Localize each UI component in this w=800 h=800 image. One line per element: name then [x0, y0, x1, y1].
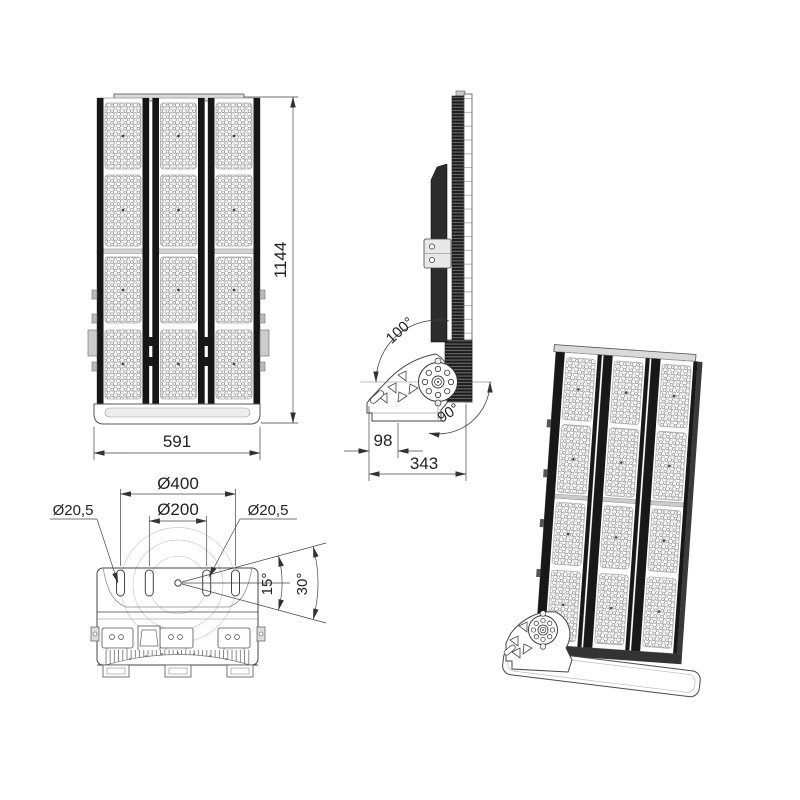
front-view: 1144 591	[88, 94, 298, 460]
front-led-columns	[97, 98, 260, 404]
inner-bolt-circle-label: Ø200	[157, 500, 199, 519]
swivel-angle-half-label: 15°	[259, 573, 276, 596]
drawing-canvas: 1144 591	[0, 0, 800, 800]
front-height-dimension-label: 1144	[271, 242, 290, 279]
side-depth-label: 343	[410, 454, 438, 473]
slot-dia-left-label: Ø20,5	[53, 502, 94, 519]
side-view: 100° 90° 98 343	[344, 91, 492, 481]
front-width-dimension-label: 591	[163, 432, 191, 451]
perspective-led-columns	[535, 352, 697, 654]
swivel-angle-full-label: 30°	[294, 573, 311, 596]
technical-drawing: 1144 591	[0, 0, 800, 800]
outer-bolt-circle-label: Ø400	[157, 474, 199, 493]
perspective-view	[502, 344, 703, 697]
bottom-housing-details	[91, 626, 265, 677]
side-rotation-up-label: 100°	[383, 314, 417, 347]
cable-glands	[103, 665, 253, 677]
side-bracket-base-label: 98	[374, 431, 393, 450]
slot-dia-right-label: Ø20,5	[248, 502, 289, 519]
bottom-view: 15° 30° Ø400 Ø200 Ø20,5 Ø20,5	[50, 474, 326, 677]
